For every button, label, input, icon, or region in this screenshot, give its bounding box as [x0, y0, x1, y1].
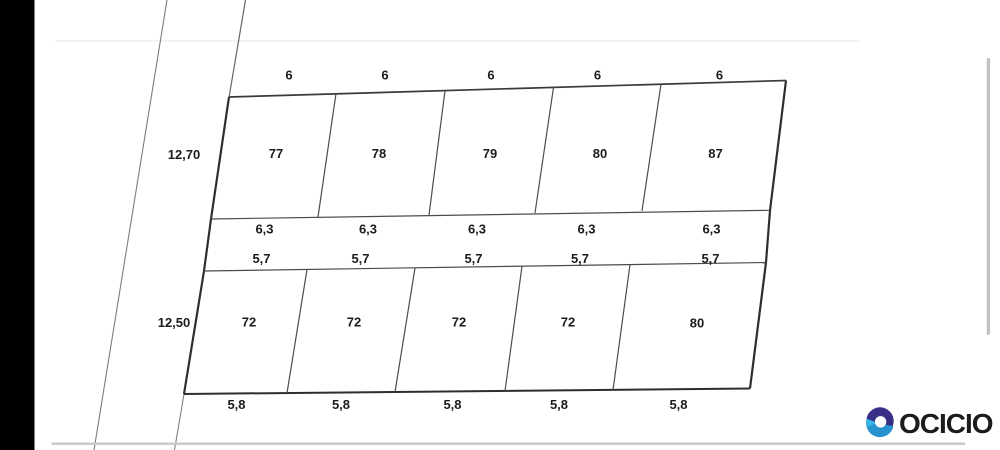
svg-text:6,3: 6,3	[702, 222, 720, 237]
svg-text:77: 77	[269, 146, 283, 161]
svg-text:6,3: 6,3	[577, 222, 595, 237]
svg-text:80: 80	[690, 316, 704, 331]
svg-text:6: 6	[594, 68, 601, 83]
svg-text:5,8: 5,8	[332, 397, 350, 412]
svg-text:72: 72	[242, 315, 256, 330]
svg-text:80: 80	[593, 146, 607, 161]
svg-text:6: 6	[381, 68, 388, 83]
svg-text:12,70: 12,70	[168, 147, 201, 162]
svg-text:OCICIO: OCICIO	[899, 408, 993, 439]
svg-text:72: 72	[561, 315, 575, 330]
svg-text:5,8: 5,8	[227, 397, 245, 412]
svg-text:5,8: 5,8	[669, 397, 687, 412]
svg-text:5,7: 5,7	[464, 251, 482, 266]
svg-text:87: 87	[708, 146, 722, 161]
svg-text:72: 72	[347, 315, 361, 330]
svg-text:5,8: 5,8	[550, 397, 568, 412]
svg-text:5,7: 5,7	[571, 251, 589, 266]
svg-text:12,50: 12,50	[158, 315, 191, 330]
svg-text:5,7: 5,7	[252, 251, 270, 266]
svg-text:6,3: 6,3	[255, 222, 273, 237]
svg-text:6: 6	[487, 68, 494, 83]
svg-text:6,3: 6,3	[468, 222, 486, 237]
svg-text:5,7: 5,7	[351, 251, 369, 266]
svg-text:6: 6	[716, 68, 723, 83]
svg-text:79: 79	[483, 146, 497, 161]
svg-text:6,3: 6,3	[359, 222, 377, 237]
svg-text:78: 78	[372, 146, 386, 161]
svg-text:5,7: 5,7	[701, 251, 719, 266]
svg-text:5,8: 5,8	[443, 397, 461, 412]
svg-text:6: 6	[285, 68, 292, 83]
svg-text:72: 72	[452, 315, 466, 330]
